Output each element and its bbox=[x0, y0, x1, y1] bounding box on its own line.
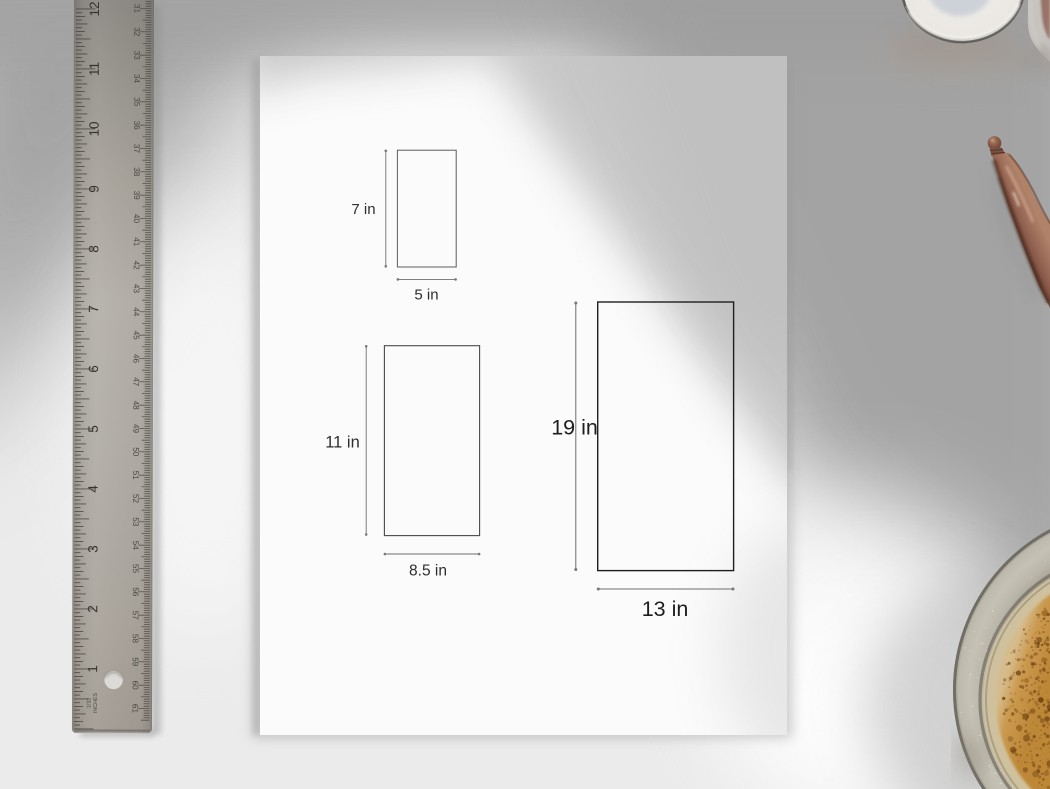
svg-text:13 in: 13 in bbox=[642, 597, 689, 621]
svg-text:1: 1 bbox=[85, 665, 100, 673]
svg-text:54: 54 bbox=[131, 541, 140, 551]
svg-text:44: 44 bbox=[132, 307, 141, 317]
svg-text:55: 55 bbox=[131, 564, 140, 574]
svg-text:11 in: 11 in bbox=[325, 434, 360, 452]
svg-text:34: 34 bbox=[132, 74, 141, 84]
svg-text:40: 40 bbox=[132, 214, 141, 224]
svg-text:INCHES: INCHES bbox=[93, 692, 99, 713]
svg-text:32: 32 bbox=[132, 27, 141, 37]
svg-text:61: 61 bbox=[131, 704, 140, 714]
svg-text:58: 58 bbox=[131, 634, 140, 644]
svg-text:45: 45 bbox=[132, 331, 141, 341]
svg-text:11: 11 bbox=[87, 62, 102, 76]
svg-text:38: 38 bbox=[132, 167, 141, 177]
svg-text:50: 50 bbox=[131, 447, 140, 457]
svg-text:2: 2 bbox=[85, 605, 100, 613]
svg-text:6: 6 bbox=[86, 365, 101, 373]
svg-text:19 in: 19 in bbox=[551, 416, 598, 440]
svg-text:3: 3 bbox=[85, 545, 100, 553]
svg-text:7: 7 bbox=[86, 305, 101, 313]
svg-text:56: 56 bbox=[131, 587, 140, 597]
svg-text:41: 41 bbox=[132, 237, 141, 247]
svg-text:12: 12 bbox=[87, 1, 102, 16]
svg-text:37: 37 bbox=[132, 144, 141, 154]
svg-text:47: 47 bbox=[131, 377, 140, 387]
svg-text:52: 52 bbox=[131, 494, 140, 504]
svg-text:8: 8 bbox=[86, 245, 101, 253]
svg-text:53: 53 bbox=[131, 517, 140, 527]
svg-text:10: 10 bbox=[87, 121, 102, 136]
svg-text:51: 51 bbox=[131, 471, 140, 481]
svg-text:5 in: 5 in bbox=[414, 286, 438, 303]
svg-text:49: 49 bbox=[131, 424, 140, 434]
svg-text:46: 46 bbox=[131, 354, 140, 364]
svg-text:33: 33 bbox=[132, 51, 141, 61]
svg-text:39: 39 bbox=[132, 191, 141, 201]
svg-text:5: 5 bbox=[86, 425, 101, 433]
svg-text:31: 31 bbox=[132, 4, 141, 14]
svg-text:57: 57 bbox=[131, 611, 140, 621]
svg-text:42: 42 bbox=[132, 261, 141, 271]
svg-text:7 in: 7 in bbox=[351, 201, 375, 218]
svg-text:35: 35 bbox=[132, 97, 141, 107]
svg-text:43: 43 bbox=[132, 284, 141, 294]
svg-text:9: 9 bbox=[86, 185, 101, 193]
svg-text:8.5 in: 8.5 in bbox=[409, 563, 447, 580]
svg-text:48: 48 bbox=[131, 401, 140, 411]
svg-text:1/32: 1/32 bbox=[87, 698, 93, 709]
svg-text:36: 36 bbox=[132, 121, 141, 131]
svg-text:4: 4 bbox=[86, 485, 101, 493]
svg-text:59: 59 bbox=[131, 657, 140, 667]
svg-text:60: 60 bbox=[131, 681, 140, 691]
